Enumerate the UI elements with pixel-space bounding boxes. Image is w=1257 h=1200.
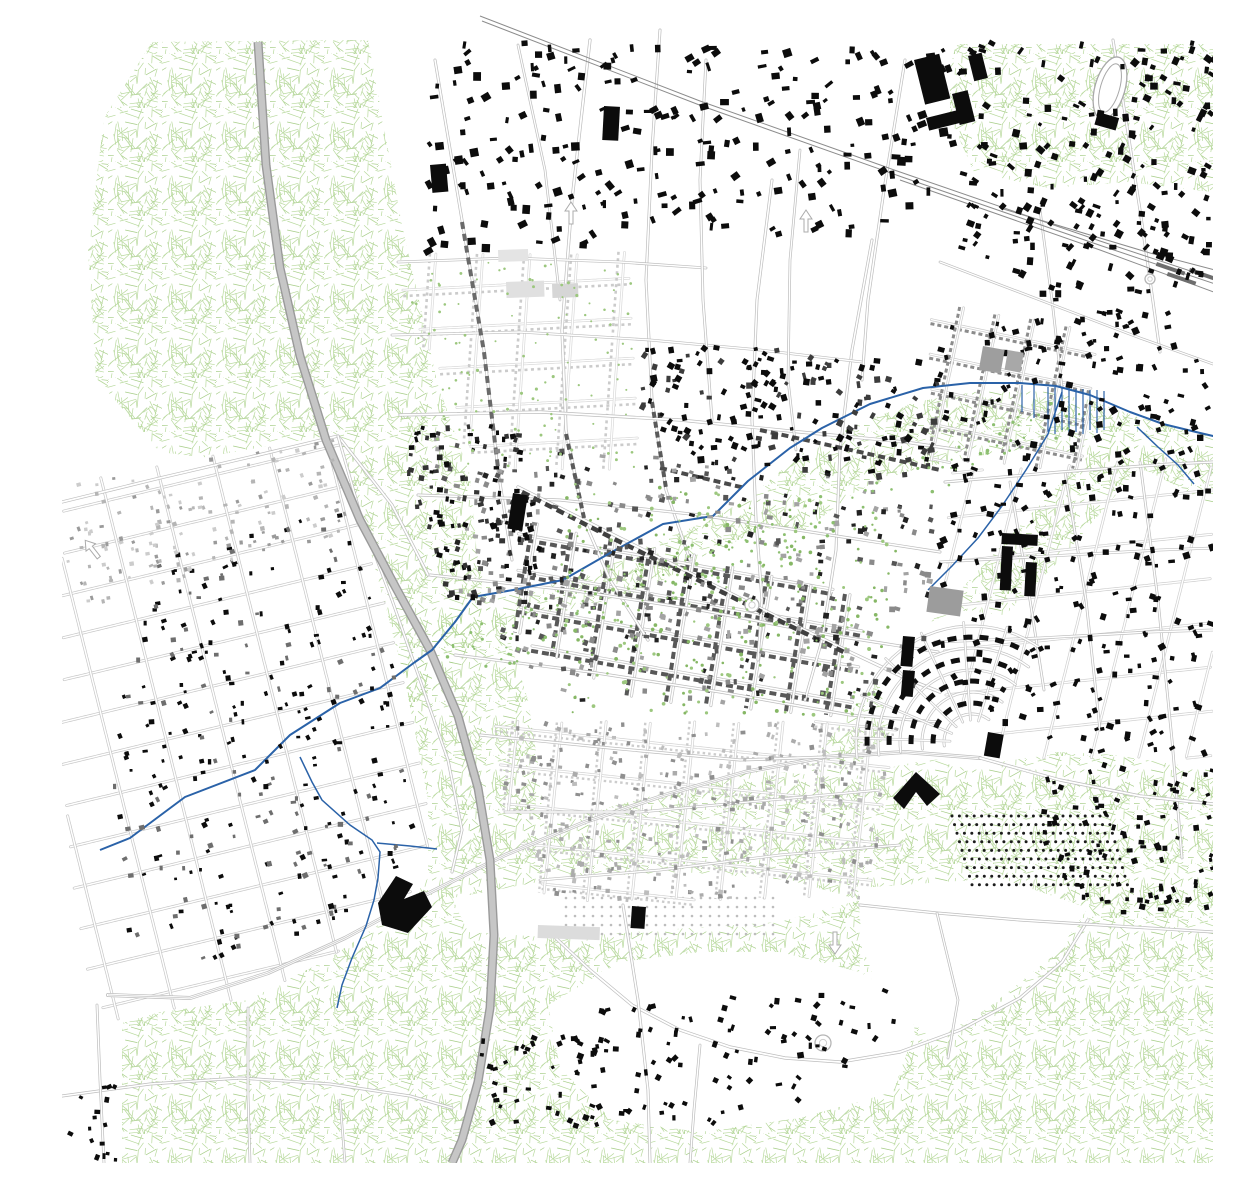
map-frame (0, 0, 1257, 1200)
city-figure-ground-map (0, 0, 1257, 1200)
